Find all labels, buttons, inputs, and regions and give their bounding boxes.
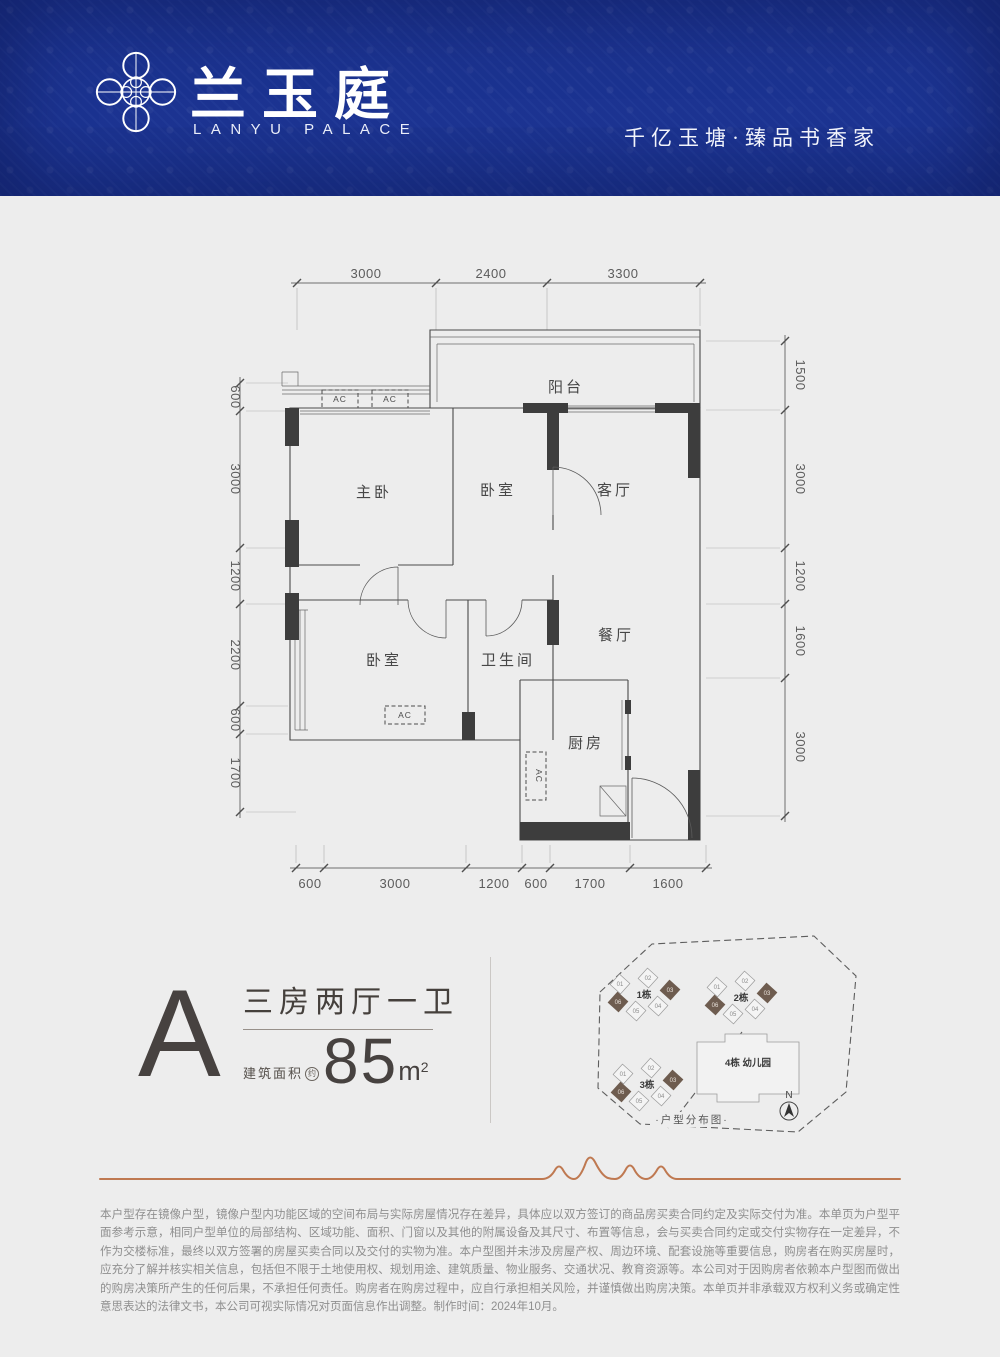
svg-text:06: 06 — [712, 1003, 719, 1009]
room-labels: 阳台 主卧 卧室 客厅 餐厅 卧室 卫生间 厨房 — [356, 379, 634, 752]
svg-text:02: 02 — [648, 1066, 655, 1072]
dim-right-2: 3000 — [793, 464, 808, 495]
dim-bottom-4: 600 — [524, 876, 547, 891]
building-label-3: 3栋 — [640, 1079, 655, 1091]
building-label-1: 1栋 — [637, 989, 652, 1001]
siteplan-map: 01 02 03 04 05 06 1栋 01 02 03 04 05 06 2… — [560, 918, 880, 1170]
building-4: 4栋 幼儿园 — [697, 1034, 799, 1102]
dim-bottom-6: 1600 — [653, 876, 684, 891]
svg-text:05: 05 — [633, 1009, 640, 1015]
svg-text:05: 05 — [730, 1012, 737, 1018]
dim-left-4: 2200 — [228, 640, 243, 671]
svg-text:02: 02 — [645, 976, 652, 982]
floorplan-drawing: 3000 2400 3300 600 3000 1200 2200 600 17… — [190, 260, 830, 920]
dim-bottom-2: 3000 — [380, 876, 411, 891]
ac-units: AC AC AC AC — [322, 390, 546, 800]
svg-text:N: N — [785, 1090, 792, 1101]
room-label-bedroom3: 卧室 — [366, 652, 402, 669]
dim-right-5: 3000 — [793, 732, 808, 763]
svg-text:03: 03 — [670, 1078, 677, 1084]
svg-text:02: 02 — [742, 979, 749, 985]
dim-top-2: 2400 — [476, 266, 507, 281]
building-cluster-2: 01 02 03 04 05 06 2栋 — [705, 971, 777, 1024]
walls-thick — [285, 403, 700, 840]
dim-left-6: 1700 — [228, 758, 243, 789]
wave-divider — [90, 1140, 910, 1200]
room-label-bathroom: 卫生间 — [481, 652, 535, 669]
svg-text:06: 06 — [615, 1000, 622, 1006]
building-label-2: 2栋 — [734, 992, 749, 1004]
dim-right-4: 1600 — [793, 626, 808, 657]
svg-text:04: 04 — [658, 1094, 665, 1100]
dim-left-1: 600 — [228, 385, 243, 408]
ac-label-1: AC — [333, 394, 347, 404]
dimension-labels: 3000 2400 3300 600 3000 1200 2200 600 17… — [228, 266, 808, 891]
dimension-lines — [236, 279, 789, 872]
area-value: 85 — [323, 1032, 398, 1091]
siteplan-caption: ·户型分布图· — [655, 1113, 729, 1126]
ac-label-3: AC — [398, 710, 412, 720]
unit-area: 建筑面积 约 85 m 2 — [243, 1032, 429, 1091]
building-cluster-1: 01 02 03 04 05 06 1栋 — [608, 968, 680, 1021]
dim-right-3: 1200 — [793, 561, 808, 592]
room-label-dining: 餐厅 — [598, 627, 634, 644]
header-banner: 兰玉庭 LANYU PALACE 千亿玉塘·臻品书香家 — [0, 0, 1000, 196]
brand-emblem-icon — [92, 48, 180, 136]
dim-top-3: 3300 — [608, 266, 639, 281]
area-unit: m — [398, 1056, 421, 1091]
svg-text:03: 03 — [764, 991, 771, 997]
dim-bottom-3: 1200 — [479, 876, 510, 891]
svg-text:05: 05 — [636, 1099, 643, 1105]
walls-thin — [282, 330, 700, 840]
room-label-balcony: 阳台 — [548, 379, 584, 396]
svg-text:03: 03 — [667, 988, 674, 994]
svg-text:01: 01 — [617, 982, 624, 988]
svg-text:04: 04 — [752, 1007, 759, 1013]
brand-name: 兰玉庭 — [190, 50, 406, 131]
room-label-master-bedroom: 主卧 — [356, 484, 392, 501]
svg-text:06: 06 — [618, 1090, 625, 1096]
compass-icon: N — [780, 1090, 798, 1120]
dim-bottom-5: 1700 — [575, 876, 606, 891]
dim-bottom-1: 600 — [298, 876, 321, 891]
brand-name-en: LANYU PALACE — [193, 121, 419, 138]
svg-text:01: 01 — [620, 1072, 627, 1078]
area-approx-badge: 约 — [305, 1067, 319, 1081]
unit-type-letter: A — [138, 972, 221, 1096]
building-label-4: 4栋 幼儿园 — [725, 1057, 771, 1069]
dim-right-1: 1500 — [793, 360, 808, 391]
disclaimer-text: 本户型存在镜像户型，镜像户型内功能区域的空间布局与实际房屋情况存在差异，具体应以… — [100, 1206, 900, 1316]
dim-left-5: 600 — [228, 708, 243, 731]
vertical-divider — [490, 957, 491, 1123]
dim-left-2: 3000 — [228, 464, 243, 495]
ac-label-4: AC — [534, 769, 544, 783]
flyer-page: 兰玉庭 LANYU PALACE 千亿玉塘·臻品书香家 — [0, 0, 1000, 1357]
svg-text:04: 04 — [655, 1004, 662, 1010]
dim-top-1: 3000 — [351, 266, 382, 281]
room-label-kitchen: 厨房 — [568, 735, 604, 752]
svg-text:01: 01 — [714, 985, 721, 991]
unit-layout-name: 三房两厅一卫 — [243, 977, 459, 1021]
room-label-bedroom2: 卧室 — [480, 482, 516, 499]
dim-left-3: 1200 — [228, 561, 243, 592]
room-label-living: 客厅 — [597, 482, 633, 499]
area-prefix-label: 建筑面积 — [243, 1063, 303, 1091]
building-cluster-3: 01 02 03 04 05 06 3栋 — [611, 1058, 683, 1111]
header-tagline: 千亿玉塘·臻品书香家 — [624, 122, 880, 152]
area-unit-exponent: 2 — [421, 1059, 429, 1075]
ac-label-2: AC — [383, 394, 397, 404]
